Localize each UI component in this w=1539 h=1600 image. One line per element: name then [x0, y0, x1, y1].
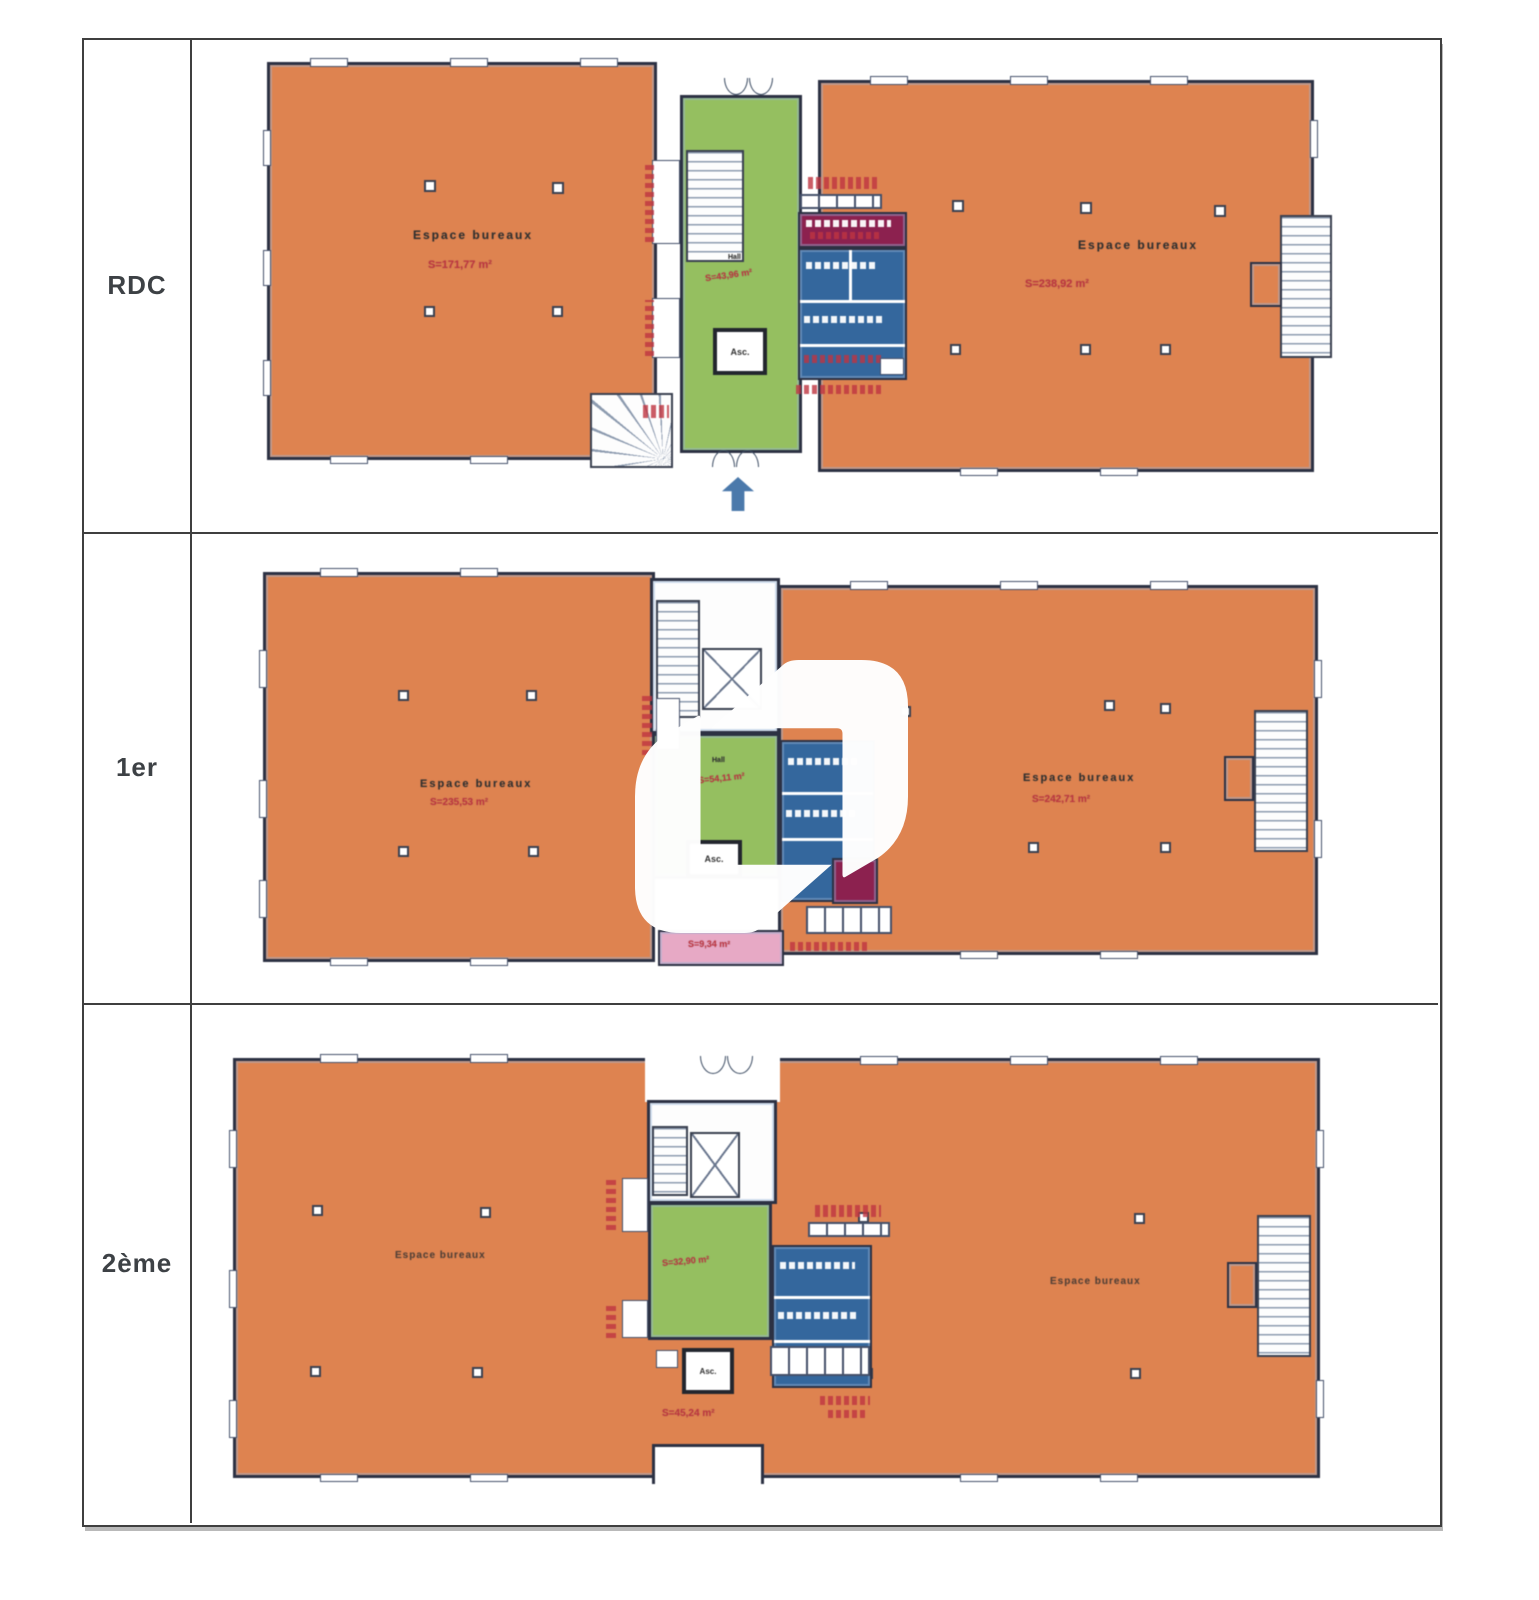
- column-post: [1134, 1213, 1145, 1224]
- column-post: [312, 1205, 323, 1216]
- red-micro-text: [808, 177, 880, 189]
- table-column-divider: [190, 38, 192, 1523]
- column-post: [1160, 703, 1171, 714]
- tech-room: [798, 212, 907, 248]
- label-office-left: Espace bureaux: [420, 778, 532, 790]
- white-micro-text: [780, 1262, 855, 1269]
- window-tick: [320, 1474, 358, 1482]
- red-micro-text: [810, 232, 880, 239]
- window-tick: [470, 958, 508, 966]
- column-post: [1080, 344, 1091, 355]
- partition: [774, 1296, 870, 1299]
- box-row: [770, 1346, 870, 1376]
- service-box: [622, 1178, 648, 1232]
- red-micro-text: [820, 1396, 870, 1405]
- label-office-left: Espace bureaux: [413, 228, 533, 242]
- window-tick: [1316, 1130, 1324, 1168]
- column-post: [526, 690, 537, 701]
- white-micro-text: [804, 316, 882, 323]
- window-tick: [1100, 468, 1138, 476]
- office-left: [263, 572, 655, 962]
- window-tick: [470, 1474, 508, 1482]
- partition: [800, 344, 905, 347]
- bottom-notch: [652, 1444, 764, 1484]
- window-tick: [229, 1400, 237, 1438]
- column-post: [1080, 202, 1092, 214]
- column-post: [1130, 1368, 1141, 1379]
- small-box: [880, 358, 904, 375]
- column-post: [1160, 842, 1171, 853]
- label-office-right: Espace bureaux: [1050, 1276, 1141, 1287]
- entrance-arrow: [722, 477, 754, 511]
- window-tick: [860, 1056, 898, 1065]
- window-tick: [450, 58, 488, 67]
- window-tick: [850, 581, 888, 590]
- window-tick: [960, 1474, 998, 1482]
- table-row-divider: [82, 1003, 1438, 1005]
- stair-lobby: [1250, 262, 1282, 307]
- column-post: [424, 306, 435, 317]
- stairs: [686, 150, 744, 262]
- service-box: [622, 1300, 648, 1338]
- elevator-asc: Asc.: [713, 328, 767, 375]
- red-micro-text: [796, 385, 881, 394]
- floor-label-2eme: 2ème: [102, 1248, 173, 1279]
- floor-label-rdc: RDC: [107, 270, 166, 301]
- window-tick: [259, 880, 267, 918]
- elevator-shaft: [690, 1132, 740, 1198]
- column-post: [1028, 842, 1039, 853]
- window-tick: [229, 1270, 237, 1308]
- window-tick: [320, 568, 358, 577]
- row-label-cell-1er: 1er: [84, 532, 190, 1003]
- column-post: [1160, 344, 1171, 355]
- service-box: [652, 160, 680, 244]
- label-hall: Hall: [728, 254, 741, 261]
- watermark-logo-icon: [635, 660, 908, 933]
- column-post: [424, 180, 436, 192]
- stair-tower: [1257, 1215, 1311, 1357]
- label-office-left-area: S=235,53 m²: [430, 797, 488, 808]
- window-tick: [870, 76, 908, 85]
- window-tick: [580, 58, 618, 67]
- window-tick: [263, 250, 271, 286]
- label-floor-area: S=45,24 m²: [662, 1408, 715, 1419]
- window-tick: [330, 958, 368, 966]
- window-tick: [1100, 1474, 1138, 1482]
- label-vestibule-area: S=9,34 m²: [688, 939, 730, 949]
- window-tick: [1010, 1056, 1048, 1065]
- column-post: [952, 200, 964, 212]
- window-tick: [310, 58, 348, 67]
- red-micro-text: [606, 1302, 616, 1338]
- row-label-cell-2eme: 2ème: [84, 1003, 190, 1523]
- box-row: [800, 194, 882, 209]
- column-post: [398, 690, 409, 701]
- column-post: [950, 344, 961, 355]
- white-micro-text: [778, 1312, 856, 1319]
- white-micro-text: [806, 220, 891, 227]
- window-tick: [1160, 1056, 1198, 1065]
- stairs: [652, 1126, 688, 1196]
- elevator-asc: Asc.: [682, 1348, 734, 1394]
- window-tick: [1000, 581, 1038, 590]
- label-office-right: Espace bureaux: [1078, 238, 1198, 252]
- window-tick: [1314, 820, 1322, 858]
- column-post: [552, 182, 564, 194]
- partition: [849, 250, 852, 300]
- row-label-cell-rdc: RDC: [84, 38, 190, 532]
- red-micro-text: [804, 355, 882, 363]
- red-micro-text: [790, 942, 870, 951]
- red-micro-text: [645, 300, 654, 356]
- column-post: [552, 306, 563, 317]
- service-box: [656, 1350, 678, 1368]
- window-tick: [1010, 76, 1048, 85]
- window-tick: [1150, 76, 1188, 85]
- window-tick: [960, 951, 998, 959]
- window-tick: [1314, 660, 1322, 698]
- red-micro-text: [828, 1410, 868, 1418]
- column-post: [480, 1207, 491, 1218]
- table-row-divider: [82, 532, 1438, 534]
- window-tick: [470, 456, 508, 464]
- red-micro-text: [606, 1180, 616, 1230]
- window-tick: [263, 130, 271, 166]
- column-post: [528, 846, 539, 857]
- stair-lobby: [1227, 1262, 1257, 1308]
- partition: [800, 300, 905, 303]
- window-tick: [1150, 581, 1188, 590]
- column-post: [472, 1367, 483, 1378]
- column-post: [1104, 700, 1115, 711]
- red-micro-text: [643, 405, 669, 418]
- red-micro-text: [815, 1205, 881, 1217]
- stair-tower: [1280, 215, 1332, 358]
- door-swing: [749, 78, 773, 95]
- floor-label-1er: 1er: [116, 752, 158, 783]
- label-office-left: Espace bureaux: [395, 1250, 486, 1261]
- window-tick: [460, 568, 498, 577]
- label-office-right: Espace bureaux: [1023, 772, 1135, 784]
- window-tick: [330, 456, 368, 464]
- column-post: [398, 846, 409, 857]
- window-tick: [229, 1130, 237, 1168]
- hall-room: [648, 1202, 772, 1340]
- box-row: [808, 1222, 890, 1237]
- column-post: [310, 1366, 321, 1377]
- label-office-right-area: S=238,92 m²: [1025, 278, 1089, 290]
- label-office-right-area: S=242,71 m²: [1032, 794, 1090, 805]
- window-tick: [470, 1054, 508, 1063]
- door-swing: [724, 78, 748, 95]
- window-tick: [320, 1054, 358, 1063]
- window-tick: [1316, 1380, 1324, 1418]
- partition: [774, 1340, 870, 1343]
- window-tick: [263, 360, 271, 396]
- stair-lobby: [1224, 756, 1254, 801]
- window-tick: [259, 650, 267, 688]
- white-micro-text: [806, 262, 878, 269]
- service-box: [652, 298, 680, 358]
- stair-tower: [1254, 710, 1308, 852]
- window-tick: [1310, 120, 1318, 158]
- column-post: [1214, 205, 1226, 217]
- window-tick: [1100, 951, 1138, 959]
- label-office-left-area: S=171,77 m²: [428, 259, 492, 271]
- red-micro-text: [645, 162, 654, 242]
- window-tick: [960, 468, 998, 476]
- window-tick: [259, 780, 267, 818]
